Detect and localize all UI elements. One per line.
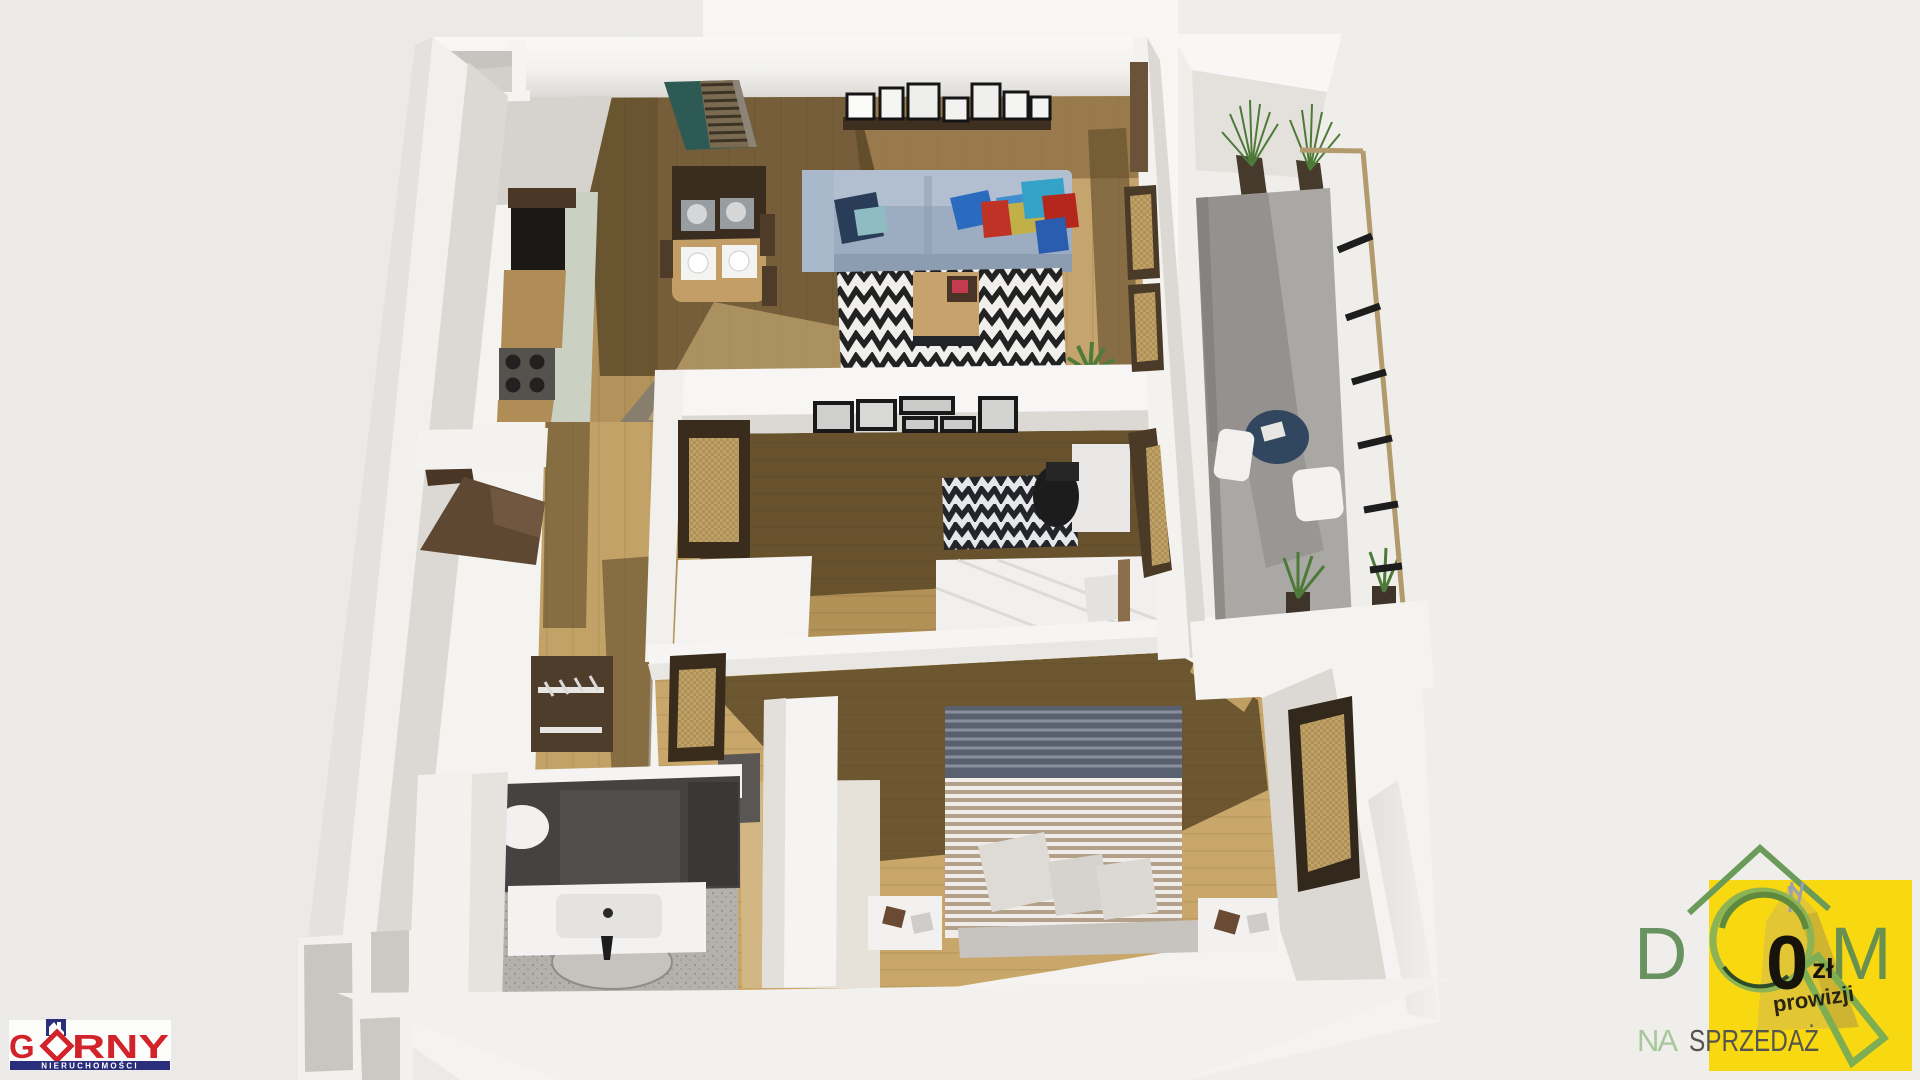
svg-text:G: G: [9, 1028, 35, 1065]
svg-text:NIERUCHOMOŚCI: NIERUCHOMOŚCI: [41, 1062, 139, 1071]
svg-text:NA: NA: [1637, 1023, 1678, 1058]
svg-text:zł: zł: [1812, 953, 1834, 984]
svg-text:SPRZEDAŻ: SPRZEDAŻ: [1689, 1023, 1819, 1058]
svg-text:D: D: [1634, 912, 1687, 995]
svg-text:RNY: RNY: [72, 1028, 169, 1065]
